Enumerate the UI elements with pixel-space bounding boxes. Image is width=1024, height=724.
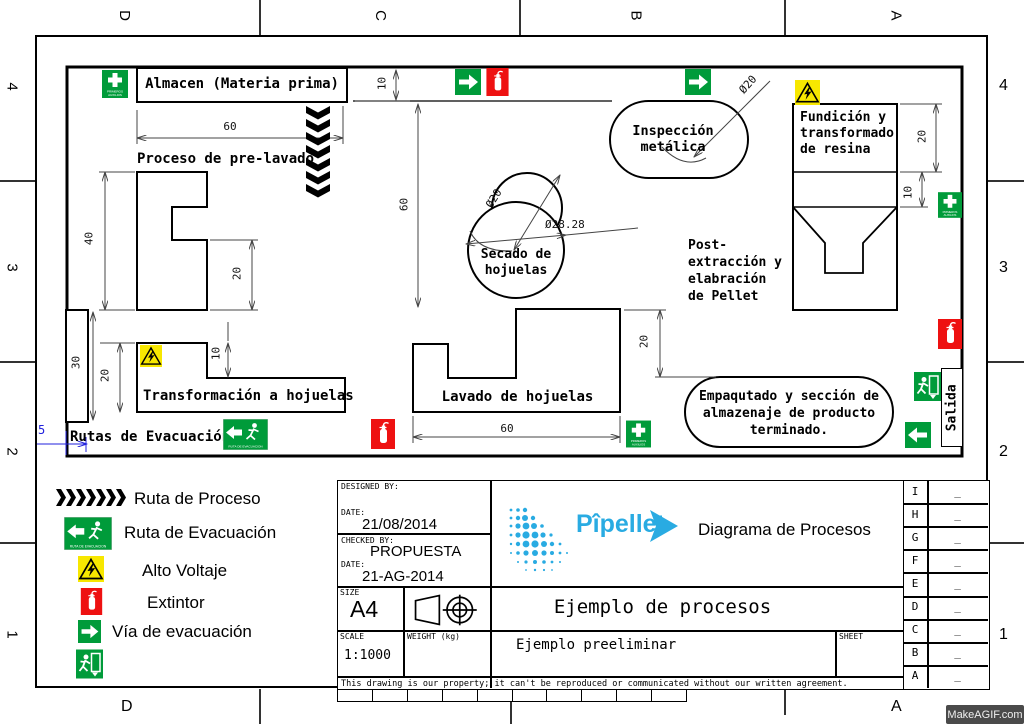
ruler-cell [443, 690, 478, 701]
watermark: MakeAGIF.com [946, 705, 1024, 724]
revision-value: _ [927, 600, 988, 613]
inspeccion-line1: Inspección [616, 123, 730, 139]
ruler-cell [617, 690, 652, 701]
dim-transf-20: 20 [99, 361, 112, 391]
revision-value: _ [927, 623, 988, 636]
margin-ruler [337, 689, 687, 702]
exit-arrow-right-sign-icon [76, 620, 103, 643]
revision-table-line [903, 526, 988, 528]
room-prelavado [137, 172, 207, 310]
empaque-line3: terminado. [692, 422, 886, 439]
dim-lavado-60: 60 [492, 422, 522, 435]
pipellet-logo-dots [505, 504, 575, 578]
ruler-cell [652, 690, 686, 701]
titleblock-line [337, 586, 903, 588]
post-line4: de Pellet [688, 288, 782, 305]
revision-table-line [903, 665, 988, 667]
exit-man-sign-icon [76, 649, 103, 679]
high-voltage-sign-icon [795, 80, 820, 105]
ruler-cell [338, 690, 373, 701]
ruler-cell [547, 690, 582, 701]
evacuation-route-sign-icon [223, 419, 268, 450]
titleblock-line [403, 586, 405, 676]
legend-label-ruta-evacuacion: Ruta de Evacuación [124, 523, 276, 543]
secado-line2: hojuelas [466, 263, 566, 279]
empaque-line2: almazenaje de producto [692, 405, 886, 422]
disclaimer: This drawing is our property; it can't b… [341, 679, 848, 689]
fundicion-line3: de resina [800, 142, 894, 158]
revision-letter: A [903, 669, 927, 682]
revision-value: _ [927, 554, 988, 567]
evacuation-route-sign-icon [64, 517, 112, 550]
drawing-sheet: PRIMEROS AUXILIOS [0, 0, 1024, 724]
revision-value: _ [927, 577, 988, 590]
designed-date-value: 21/08/2014 [362, 516, 437, 533]
revision-letter: G [903, 531, 927, 544]
revision-value: _ [927, 508, 988, 521]
room-label-transformacion: Transformación a hojuelas [143, 388, 341, 405]
room-label-secado: Secado de hojuelas [466, 247, 566, 278]
titleblock-line [835, 630, 837, 676]
room-label-inspeccion: Inspección metálica [616, 123, 730, 155]
dim-prelavado-40: 40 [83, 224, 96, 254]
dim-lavado-20: 20 [638, 327, 651, 357]
exit-arrow-left-sign-icon [903, 422, 933, 448]
ruler-cell [478, 690, 513, 701]
legend-label-via-evacuacion: Vía de evacuación [112, 622, 252, 642]
checked-date-value: 21-AG-2014 [362, 568, 444, 585]
first-aid-sign-icon [626, 419, 651, 449]
revision-letter: F [903, 554, 927, 567]
revision-value: _ [927, 646, 988, 659]
fundicion-line2: transformado [800, 126, 894, 142]
scale-label: SCALE [340, 632, 364, 641]
dim-blue-5: 5 [38, 423, 45, 437]
scale-value: 1:1000 [344, 648, 391, 663]
dim-secado-diameter2: Ø28.28 [545, 218, 585, 231]
drawing-title: Ejemplo de procesos [490, 596, 835, 618]
revision-table-line [903, 619, 988, 621]
revision-letter: B [903, 646, 927, 659]
inspeccion-line2: metálica [616, 139, 730, 155]
process-route-chevrons-icon [56, 489, 128, 506]
room-label-fundicion: Fundición y transformado de resina [800, 110, 894, 158]
room-label-lavado: Lavado de hojuelas [425, 389, 610, 406]
projection-symbol-icon [408, 593, 486, 627]
empaque-line1: Empaqutado y sección de [692, 388, 886, 405]
ruler-cell [513, 690, 548, 701]
extinguisher-sign-icon [486, 68, 509, 96]
revision-table-line [903, 596, 988, 598]
revision-table-line [903, 572, 988, 574]
revision-letter: D [903, 600, 927, 613]
first-aid-sign-icon [938, 190, 962, 220]
titleblock-line [490, 480, 492, 688]
ruler-cell [408, 690, 443, 701]
post-line2: extracción y [688, 254, 782, 271]
titleblock-line [337, 533, 490, 535]
legend-label-ruta-proceso: Ruta de Proceso [134, 489, 261, 509]
ruler-cell [582, 690, 617, 701]
exit-man-sign-icon [914, 372, 941, 401]
revision-value: _ [927, 531, 988, 544]
room-label-almacen: Almacen (Materia prima) [140, 76, 344, 93]
revision-letter: E [903, 577, 927, 590]
post-line3: elabración [688, 271, 782, 288]
post-line1: Post- [688, 237, 782, 254]
fundicion-line1: Fundición y [800, 110, 894, 126]
revision-value: _ [927, 485, 988, 498]
revision-table-line [903, 549, 988, 551]
revision-table-line [903, 642, 988, 644]
titleblock-line [337, 676, 903, 678]
salida-box: Salida [941, 368, 963, 447]
drawing-subtitle: Ejemplo preeliminar [516, 637, 676, 653]
size-value: A4 [350, 596, 378, 623]
weight-label: WEIGHT (kg) [407, 632, 460, 641]
dim-fund-20: 20 [916, 122, 929, 152]
checked-by-value: PROPUESTA [370, 543, 461, 560]
legend-label-alto-voltaje: Alto Voltaje [142, 561, 227, 581]
designed-by-label: DESIGNED BY: [341, 482, 399, 491]
room-label-prelavado: Proceso de pre-lavado [137, 151, 314, 168]
extinguisher-sign-icon [938, 318, 962, 350]
exit-arrow-right-sign-icon [455, 69, 481, 95]
dim-almacen-60: 60 [215, 120, 245, 133]
first-aid-sign-icon [102, 70, 128, 98]
extinguisher-sign-icon [371, 418, 395, 450]
exit-arrow-right-sign-icon [685, 69, 711, 95]
dim-prelavado-20: 20 [231, 259, 244, 289]
dim-fund-10: 10 [902, 178, 915, 208]
revision-letter: I [903, 485, 927, 498]
doc-type: Diagrama de Procesos [698, 520, 871, 540]
revision-letter: H [903, 508, 927, 521]
ruler-cell [373, 690, 408, 701]
dim-transf-10: 10 [210, 339, 223, 369]
revision-letter: C [903, 623, 927, 636]
salida-label: Salida [944, 384, 960, 431]
high-voltage-sign-icon [140, 345, 162, 367]
brand-arrow-icon [650, 510, 678, 542]
dim-vert-60: 60 [398, 190, 411, 220]
legend-label-extintor: Extintor [147, 593, 205, 613]
high-voltage-sign-icon [78, 556, 104, 582]
sheet-label: SHEET [839, 632, 863, 641]
dim-left-30: 30 [70, 348, 83, 378]
label-post-extraccion: Post- extracción y elabración de Pellet [688, 237, 782, 305]
room-label-empaquetado: Empaqutado y sección de almazenaje de pr… [692, 388, 886, 439]
dim-corridor-10: 10 [376, 69, 389, 99]
revision-value: _ [927, 669, 988, 682]
secado-line1: Secado de [466, 247, 566, 263]
revision-table-line [903, 503, 988, 505]
extinguisher-sign-icon [80, 588, 103, 615]
label-rutas-evacuacion: Rutas de Evacuación [70, 429, 230, 446]
